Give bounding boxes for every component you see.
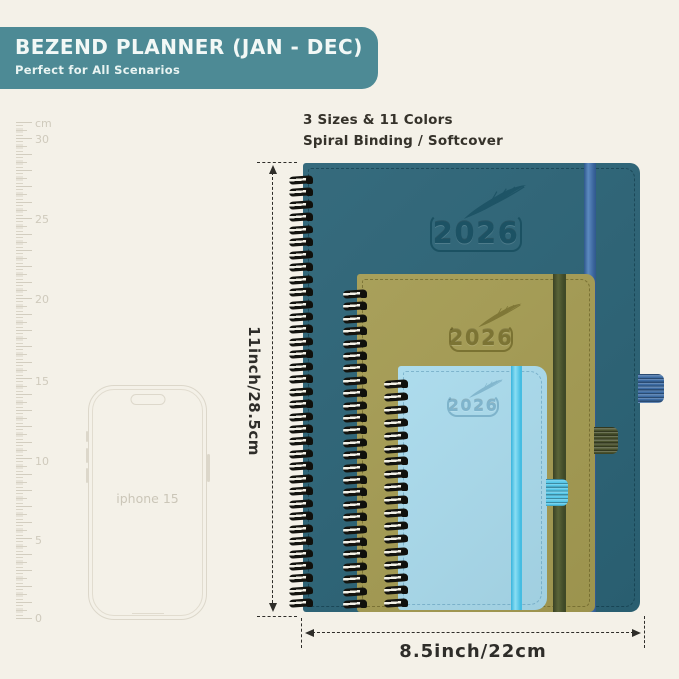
spiral-coil: [289, 562, 313, 570]
size-ruler: cm302520151050: [14, 0, 68, 679]
height-dim-top-tick: [257, 162, 297, 163]
spiral-coil: [343, 526, 367, 534]
spiral-coil: [384, 470, 408, 478]
spiral-coil: [289, 388, 313, 396]
spiral-coil: [384, 599, 408, 607]
spiral-coil: [343, 513, 367, 521]
width-dim-right-tick: [644, 616, 645, 648]
spiral-coil: [384, 522, 408, 530]
elastic-band-small: [511, 366, 522, 610]
feature-text: 3 Sizes & 11 Colors Spiral Binding / Sof…: [303, 110, 503, 152]
spiral-coil: [343, 352, 367, 360]
ruler-unit-label: cm: [35, 117, 52, 130]
spiral-coil: [343, 340, 367, 348]
spiral-coil: [289, 400, 313, 408]
spiral-coil: [343, 315, 367, 323]
spiral-coil: [289, 338, 313, 346]
height-dim-bottom-tick: [257, 616, 297, 617]
dynamic-island: [130, 394, 165, 405]
ruler-mark-label: 5: [35, 534, 42, 547]
width-dimension-label: 8.5inch/22cm: [358, 641, 588, 662]
spiral-coil: [289, 201, 313, 209]
spiral-coil: [384, 586, 408, 594]
spiral-coil: [343, 600, 367, 608]
spiral-coil: [289, 413, 313, 421]
spiral-coil: [289, 251, 313, 259]
year-text-medium: 2026: [449, 326, 513, 350]
spiral-coil: [343, 377, 367, 385]
spiral-coil: [384, 509, 408, 517]
iphone-outline: iphone 15: [88, 385, 207, 620]
spiral-coil: [343, 302, 367, 310]
spiral-coil: [384, 445, 408, 453]
spiral-coil: [289, 550, 313, 558]
spiral-coil: [289, 487, 313, 495]
spiral-coil: [343, 563, 367, 571]
ruler-major-ticks: [16, 122, 32, 620]
arrow-right-icon: [632, 629, 641, 637]
feather-icon: [468, 379, 504, 400]
spiral-coil: [384, 535, 408, 543]
spiral-coil: [343, 451, 367, 459]
feather-icon: [477, 303, 523, 329]
spiral-coil: [384, 432, 408, 440]
product-image-canvas: BEZEND PLANNER (JAN - DEC) Perfect for A…: [0, 0, 679, 679]
arrow-left-icon: [305, 629, 314, 637]
spiral-coil: [289, 213, 313, 221]
feather-icon: [462, 184, 528, 222]
spiral-coil: [343, 501, 367, 509]
height-dimension-line: [272, 172, 273, 608]
spiral-coil: [384, 548, 408, 556]
spiral-coil: [289, 450, 313, 458]
spiral-coil: [289, 325, 313, 333]
spiral-coil: [384, 457, 408, 465]
arrow-down-icon: [269, 603, 277, 612]
spiral-coil: [289, 288, 313, 296]
spiral-coil: [289, 525, 313, 533]
spiral-coil: [289, 437, 313, 445]
phone-side-button: [86, 468, 89, 483]
spiral-coil: [289, 301, 313, 309]
spiral-coil: [343, 464, 367, 472]
ruler-mark-label: 15: [35, 375, 49, 388]
spiral-coil: [343, 389, 367, 397]
spiral-coil: [343, 588, 367, 596]
ruler-mark-label: 20: [35, 293, 49, 306]
spiral-coil: [384, 393, 408, 401]
iphone-label: iphone 15: [89, 491, 206, 506]
spiral-coil: [384, 496, 408, 504]
spiral-coil: [289, 599, 313, 607]
spiral-coil: [384, 406, 408, 414]
ruler-mark-label: 25: [35, 213, 49, 226]
phone-port-line: [132, 613, 164, 615]
elastic-band-medium: [553, 274, 566, 612]
ruler-mark-label: 30: [35, 133, 49, 146]
spiral-coil: [343, 575, 367, 583]
spiral-coil: [384, 380, 408, 388]
spiral-coil: [289, 313, 313, 321]
feature-line-sizes: 3 Sizes & 11 Colors: [303, 110, 503, 131]
spiral-coil: [289, 238, 313, 246]
height-dimension-label: 11inch/28.5cm: [245, 323, 263, 459]
spiral-coil: [343, 402, 367, 410]
spiral-coil: [343, 290, 367, 298]
spiral-coil: [289, 425, 313, 433]
spiral-coil: [289, 462, 313, 470]
ruler-mark-label: 10: [35, 455, 49, 468]
spiral-coil: [289, 263, 313, 271]
pen-loop-large: [638, 374, 664, 403]
feature-line-binding: Spiral Binding / Softcover: [303, 131, 503, 152]
spiral-coil: [343, 538, 367, 546]
pen-loop-small: [546, 479, 568, 506]
phone-side-button: [86, 448, 89, 463]
spiral-coil: [343, 426, 367, 434]
spiral-coil: [289, 537, 313, 545]
spiral-coil: [343, 364, 367, 372]
pen-loop-medium: [594, 427, 618, 454]
width-dimension-line: [312, 632, 634, 633]
spiral-coil: [343, 488, 367, 496]
spiral-coil: [384, 419, 408, 427]
spiral-coil: [289, 350, 313, 358]
banner-title: BEZEND PLANNER (JAN - DEC): [15, 35, 378, 59]
spiral-coil: [343, 414, 367, 422]
arrow-up-icon: [269, 165, 277, 174]
spiral-coil: [384, 483, 408, 491]
spiral-coil: [384, 574, 408, 582]
spiral-coil: [289, 500, 313, 508]
spiral-coil: [289, 226, 313, 234]
spiral-coil: [289, 574, 313, 582]
spiral-coil: [343, 327, 367, 335]
spiral-coil: [289, 512, 313, 520]
spiral-coil: [343, 550, 367, 558]
ruler-mark-label: 0: [35, 612, 42, 625]
spiral-coil: [343, 439, 367, 447]
phone-side-button: [86, 431, 89, 442]
phone-power-button: [207, 454, 210, 482]
spiral-coil: [343, 476, 367, 484]
spiral-coil: [289, 188, 313, 196]
spiral-coil: [289, 176, 313, 184]
banner-subtitle: Perfect for All Scenarios: [15, 63, 378, 77]
width-dim-left-tick: [301, 618, 302, 648]
spiral-coil: [289, 363, 313, 371]
spiral-coil: [384, 561, 408, 569]
spiral-coil: [289, 375, 313, 383]
spiral-coil: [289, 587, 313, 595]
spiral-coil: [289, 276, 313, 284]
spiral-coil: [289, 475, 313, 483]
